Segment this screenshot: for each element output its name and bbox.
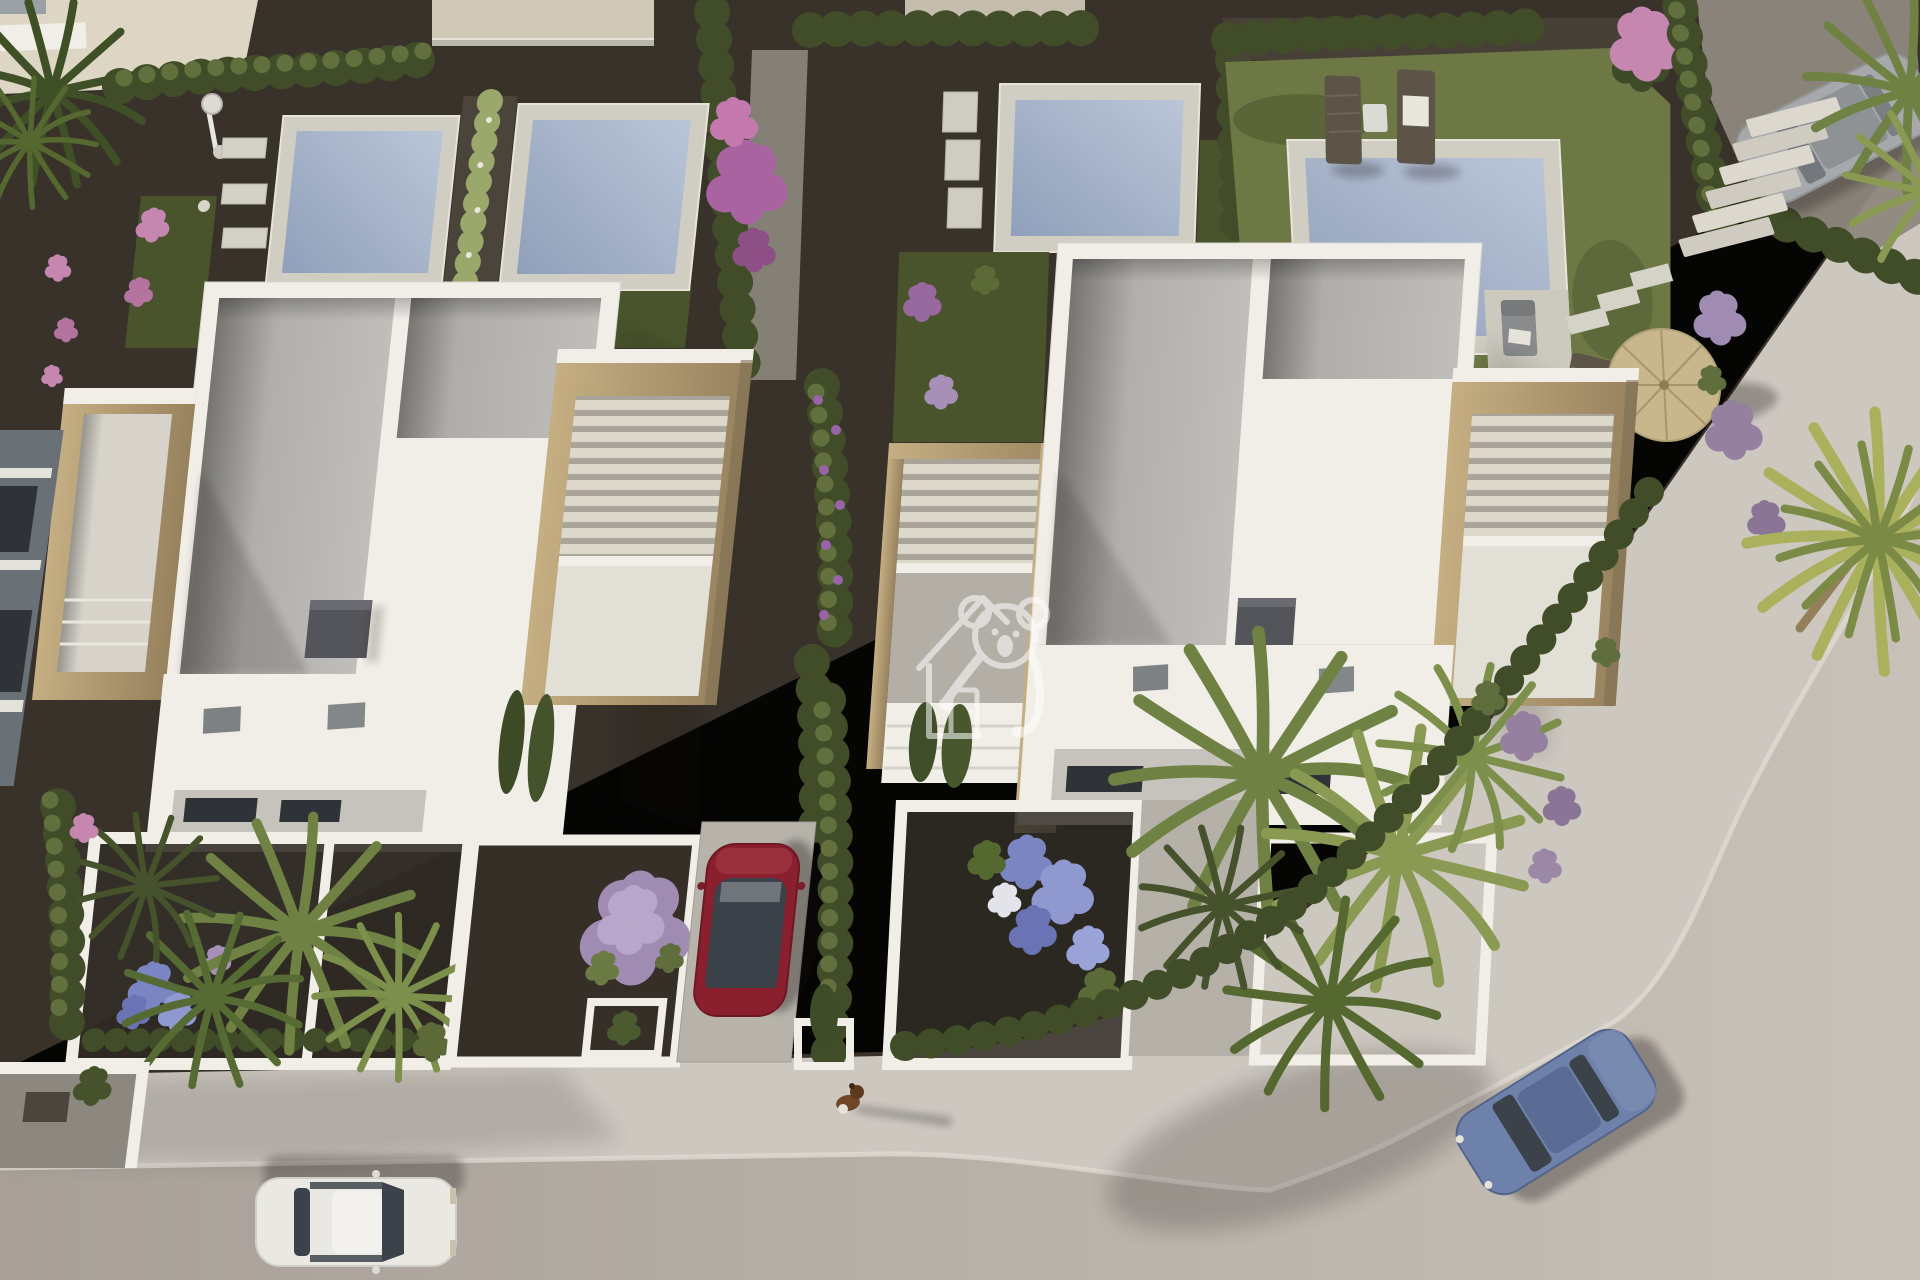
chimney xyxy=(304,600,385,662)
side-table xyxy=(1362,104,1387,132)
side-windows xyxy=(310,1255,382,1262)
neighbor-terrace xyxy=(432,0,654,40)
neighbor-roof-corner xyxy=(0,0,46,14)
hood-highlight xyxy=(715,848,794,874)
door-handle xyxy=(969,710,974,715)
koala-foot xyxy=(1011,726,1027,738)
pergola-slats xyxy=(1464,414,1615,536)
chimney xyxy=(1235,598,1296,646)
pool-1 xyxy=(265,116,459,288)
towel xyxy=(1403,95,1429,126)
pool-3-water xyxy=(1011,100,1184,236)
render-canvas xyxy=(0,0,1920,1280)
trunk xyxy=(698,988,781,1012)
mirror xyxy=(372,1170,380,1178)
architectural-render xyxy=(0,0,1920,1280)
koala-eye xyxy=(992,629,999,636)
neighbor-wall xyxy=(432,38,654,46)
roof-shade-top xyxy=(1071,259,1465,281)
bottom-left-court xyxy=(0,1062,150,1168)
pergola-slats xyxy=(559,396,730,556)
center-court xyxy=(451,822,832,1062)
mirror xyxy=(372,1266,380,1274)
koala-eye xyxy=(1013,631,1020,638)
windshield xyxy=(382,1182,404,1262)
doorway xyxy=(22,1092,70,1122)
lawn-entrance xyxy=(893,252,1050,442)
roof-shade-top xyxy=(217,298,601,320)
koala-nose xyxy=(997,635,1013,657)
glass-doors xyxy=(183,798,258,822)
koala-paw xyxy=(939,698,951,710)
hedgerow-top-right xyxy=(1228,26,1529,40)
white-car xyxy=(256,1156,464,1274)
windshield-shine xyxy=(720,882,782,902)
headlight xyxy=(450,1188,456,1204)
cypress xyxy=(810,984,838,1044)
side-windows xyxy=(310,1182,382,1189)
pool-2-water xyxy=(517,120,691,274)
pool-2 xyxy=(499,104,709,290)
rear-window xyxy=(294,1188,310,1256)
dog-ear xyxy=(849,1083,855,1089)
dog-chest xyxy=(838,1104,848,1114)
car-roof xyxy=(332,1190,382,1254)
headlight xyxy=(450,1240,456,1256)
pergola-terrace-right xyxy=(521,349,754,705)
pool-1-water xyxy=(282,131,443,273)
pool-3 xyxy=(994,84,1200,252)
terrace-armchair xyxy=(1501,300,1538,356)
hedgerow-top-mid xyxy=(810,28,1085,30)
